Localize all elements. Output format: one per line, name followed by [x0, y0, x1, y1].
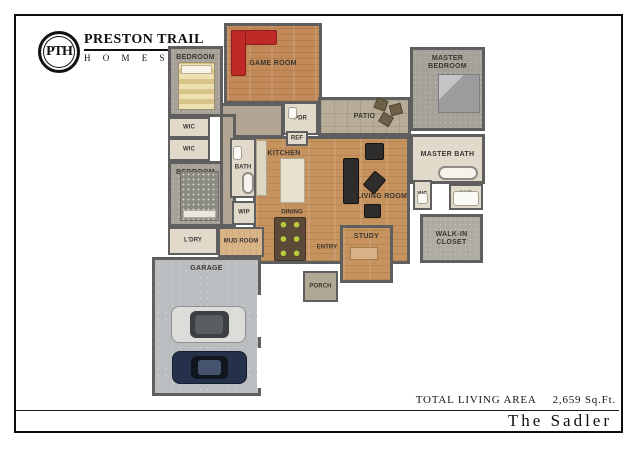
- kitchen-counter: [256, 140, 267, 196]
- room-label-master-bedroom: MASTER BEDROOM: [413, 55, 482, 71]
- room-entry-zone: ENTRY: [305, 242, 349, 254]
- living-chair-2: [364, 204, 381, 218]
- room-wip: WIP: [232, 201, 256, 225]
- guest-bed-top: [178, 62, 215, 110]
- room-label-bath: BATH: [232, 165, 254, 172]
- bath-tub: [242, 172, 254, 194]
- room-label-wip: WIP: [234, 210, 254, 217]
- room-label-study: STUDY: [343, 233, 390, 241]
- room-label-wic-1: WIC: [170, 124, 208, 131]
- floor-plan: GAME ROOMBEDROOMWICWICBEDROOML'DRYMUD RO…: [0, 0, 636, 450]
- plan-name: The Sadler: [508, 411, 612, 431]
- room-mud-room: MUD ROOM: [218, 227, 264, 257]
- study-desk: [350, 247, 378, 260]
- room-label-garage: GARAGE: [155, 265, 258, 273]
- room-label-bedroom-top: BEDROOM: [171, 54, 220, 62]
- room-label-living-zone: LIVING ROOM: [352, 193, 412, 201]
- room-label-dining-zone: DINING: [272, 209, 312, 216]
- room-label-laundry: L'DRY: [170, 238, 216, 245]
- kitchen-island: [280, 158, 305, 203]
- room-label-master-bath: MASTER BATH: [413, 151, 482, 159]
- dining-table: [274, 217, 306, 261]
- game-sofa-back: [231, 30, 246, 76]
- garage-door-1: [257, 295, 264, 337]
- living-sofa: [343, 158, 359, 204]
- total-living-area-value: 2,659 Sq.Ft.: [553, 394, 616, 406]
- garage-door-2: [257, 348, 264, 388]
- room-label-walk-in-closet: WALK-IN CLOSET: [423, 230, 480, 246]
- room-wic-1: WIC: [168, 117, 210, 138]
- car-navy: [172, 351, 247, 384]
- room-label-kitchen-zone: KITCHEN: [262, 150, 306, 158]
- guest-bed-left: [180, 171, 219, 221]
- media-cabinet: [365, 143, 384, 160]
- room-label-entry-zone: ENTRY: [305, 245, 349, 252]
- total-living-area-row: TOTAL LIVING AREA 2,659 Sq.Ft.: [416, 394, 616, 406]
- room-porch: PORCH: [303, 271, 338, 302]
- room-label-wic-2: WIC: [170, 146, 208, 153]
- room-label-porch: PORCH: [305, 283, 336, 290]
- shower-base: [453, 191, 479, 206]
- bath-sink: [233, 146, 242, 160]
- pdr-toilet: [288, 107, 297, 119]
- room-wic-2: WIC: [168, 138, 210, 161]
- room-label-mud-room: MUD ROOM: [220, 239, 262, 246]
- room-laundry: L'DRY: [168, 227, 218, 255]
- car-silver: [171, 306, 246, 343]
- room-label-ref-nook: REF: [288, 135, 306, 142]
- master-bed: [438, 74, 480, 113]
- master-tub: [438, 166, 478, 180]
- floor-plan-sheet: PTH PRESTON TRAIL H O M E S GAME ROOMBED…: [0, 0, 636, 450]
- wc-toilet: [417, 193, 428, 204]
- room-ref-nook: REF: [286, 131, 308, 146]
- room-living-zone: LIVING ROOM: [352, 191, 412, 203]
- total-living-area-label: TOTAL LIVING AREA: [416, 394, 537, 406]
- room-walk-in-closet: WALK-IN CLOSET: [420, 214, 483, 263]
